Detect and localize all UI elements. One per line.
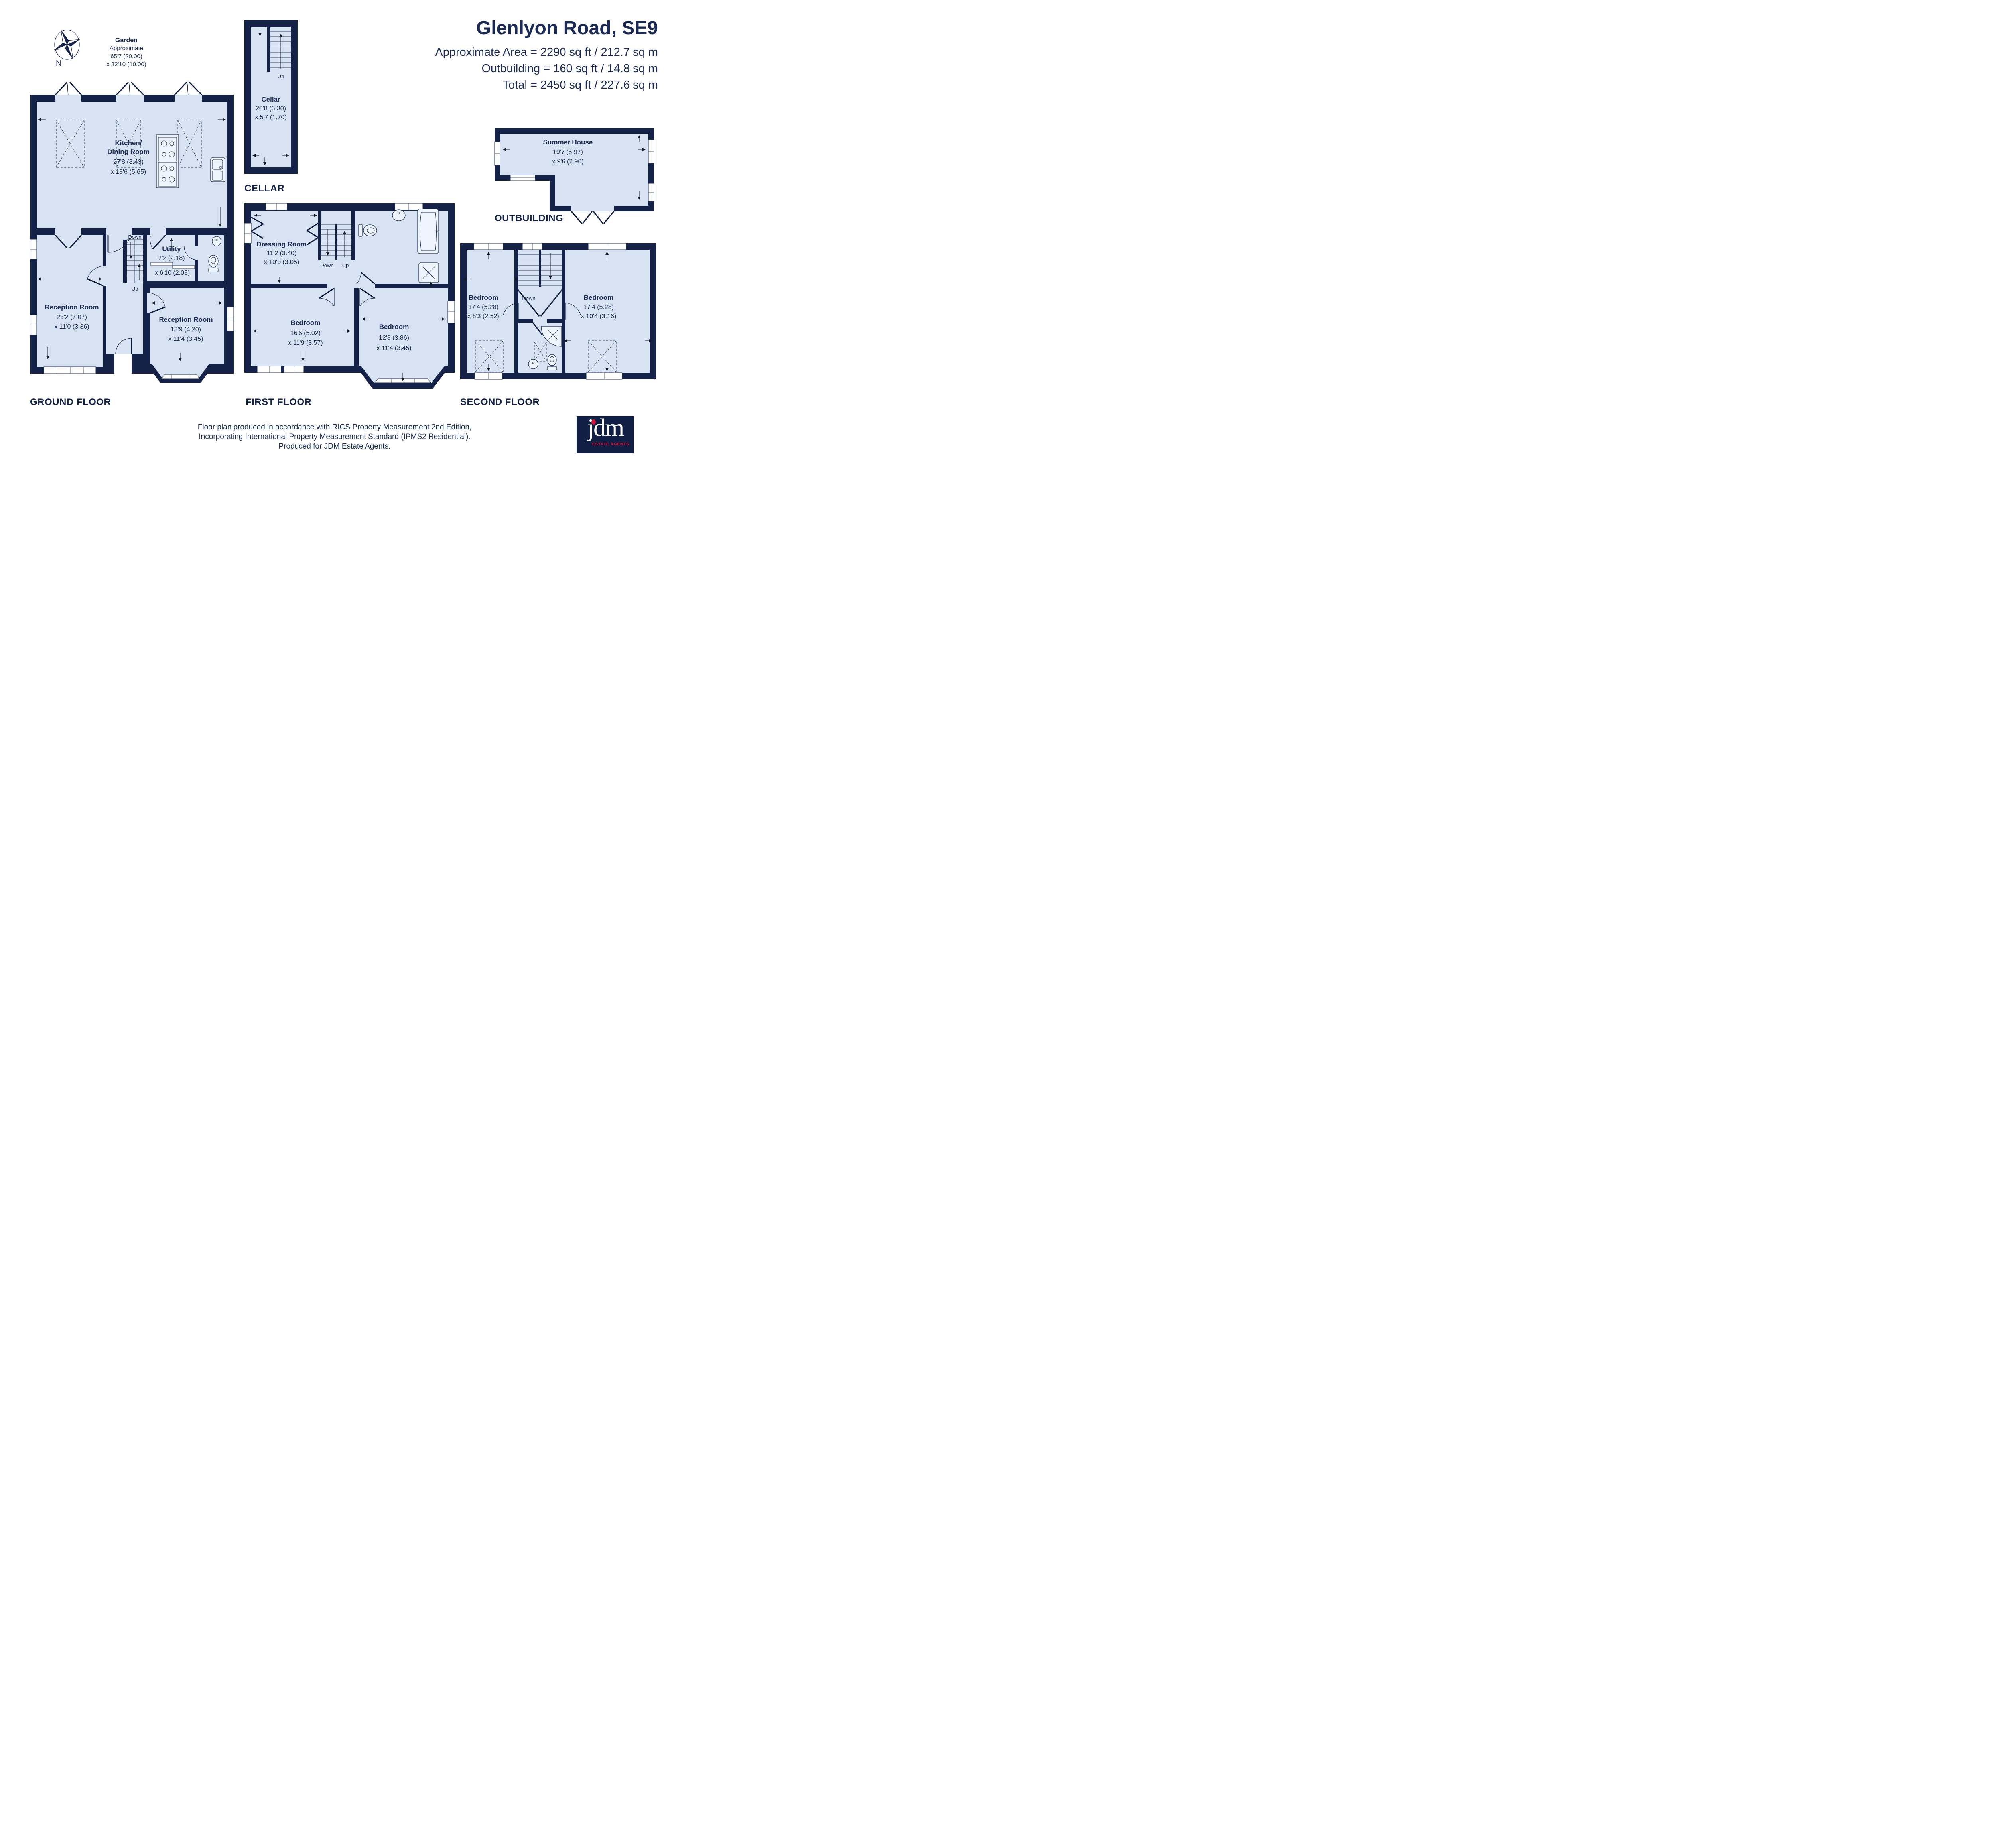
kitchen-sink-icon <box>211 158 225 182</box>
reception2-dim-2: x 11'4 (3.45) <box>168 336 203 342</box>
second-stairs-down-label: Down <box>522 295 535 301</box>
utility-dim-2: x 6'10 (2.08) <box>155 270 190 276</box>
garden-name: Garden <box>115 37 138 44</box>
dressing-dim-2: x 10'0 (3.05) <box>264 259 299 266</box>
jdm-logo-red-dot-icon <box>591 419 596 425</box>
ground-floor-label: GROUND FLOOR <box>30 397 111 407</box>
reception1-dim-2: x 11'0 (3.36) <box>54 323 89 330</box>
bedroom2-dim-1: 12'8 (3.86) <box>379 335 409 341</box>
room-bedroom-1 <box>251 288 354 366</box>
bedroom1-dim-1: 16'6 (5.02) <box>290 330 321 337</box>
summer-house-doorway <box>571 206 614 211</box>
ground-stairs-up-label: Up <box>132 286 138 292</box>
cellar-label: CELLAR <box>244 183 284 194</box>
bedroom3-dim-2: x 8'3 (2.52) <box>467 313 499 320</box>
dressing-name: Dressing Room <box>256 240 307 248</box>
compass-north-label: N <box>56 59 61 68</box>
landing-doorways <box>327 284 375 288</box>
bedroom3-dim-1: 17'4 (5.28) <box>468 304 498 311</box>
approximate-area: Approximate Area = 2290 sq ft / 212.7 sq… <box>435 46 658 59</box>
first-floor-label: FIRST FLOOR <box>246 397 311 407</box>
jdm-logo-text: jdm <box>577 415 634 440</box>
outbuilding-label: OUTBUILDING <box>495 213 563 224</box>
disclaimer-line-1: Floor plan produced in accordance with R… <box>198 423 471 431</box>
summer-house-dim-1: 19'7 (5.97) <box>553 149 583 155</box>
kitchen-dim-1: 27'8 (8.43) <box>113 159 144 165</box>
cellar-dim-1: 20'8 (6.30) <box>256 105 286 112</box>
compass-icon: N <box>48 25 85 68</box>
first-floor-plan: Down Up Dressing Room 11'2 (3.40) x 10'0… <box>244 203 455 389</box>
porch-recess <box>114 354 132 374</box>
floorplan-page: Glenlyon Road, SE9 Approximate Area = 22… <box>0 0 680 462</box>
cellar-name: Cellar <box>261 96 280 103</box>
header: Glenlyon Road, SE9 Approximate Area = 22… <box>435 18 658 91</box>
ground-floor-plan: Down Up Kitchen/ Dining Room 27'8 (8.43)… <box>30 82 234 383</box>
summer-house-dim-2: x 9'6 (2.90) <box>552 158 584 165</box>
kitchen-name-1: Kitchen/ <box>115 139 142 147</box>
garden-approximate: Approximate <box>110 45 143 52</box>
cellar-plan: Up Cellar 20'8 (6.30) x 5'7 (1.70) <box>244 20 298 174</box>
jdm-logo: jdm ESTATE AGENTS <box>577 416 634 453</box>
page-title: Glenlyon Road, SE9 <box>476 18 658 39</box>
disclaimer: Floor plan produced in accordance with R… <box>198 423 471 451</box>
wc-doorway <box>195 246 198 260</box>
utility-dim-1: 7'2 (2.18) <box>158 255 185 262</box>
second-floor-label: SECOND FLOOR <box>460 397 540 407</box>
reception1-doorway <box>103 266 106 286</box>
kitchen-dim-2: x 18'6 (5.65) <box>111 169 146 175</box>
first-shower-icon <box>419 263 439 283</box>
reception1-dim-1: 23'2 (7.07) <box>57 314 87 321</box>
second-floor-plan: Down <box>460 243 656 379</box>
shower-room-wall-left <box>518 319 533 323</box>
kitchen-reception-doorway <box>55 228 81 235</box>
outbuilding-plan: Summer House 19'7 (5.97) x 9'6 (2.90) <box>495 128 654 224</box>
garden-dim2: x 32'10 (10.00) <box>106 61 146 68</box>
dressing-dim-1: 11'2 (3.40) <box>267 250 297 257</box>
second-toilet-icon <box>547 354 557 370</box>
ground-stairs-down-label: Down <box>128 234 141 240</box>
reception2-doorway <box>147 293 150 313</box>
summer-house-french-doors-icon <box>571 211 614 224</box>
wc-toilet-icon <box>209 255 218 272</box>
outbuilding-area: Outbuilding = 160 sq ft / 14.8 sq m <box>481 62 658 75</box>
bedroom1-dim-2: x 11'9 (3.57) <box>288 340 323 346</box>
first-stairs-down-label: Down <box>320 262 333 268</box>
cellar-stairs-up-label: Up <box>278 73 284 79</box>
bedroom3-name: Bedroom <box>469 294 498 301</box>
reception1-name: Reception Room <box>45 303 99 311</box>
disclaimer-line-2: Incorporating International Property Mea… <box>199 433 470 441</box>
room-bedroom-3 <box>467 250 514 373</box>
bedroom2-dim-2: x 11'4 (3.45) <box>376 345 411 352</box>
bedroom1-name: Bedroom <box>291 319 321 327</box>
garden-dim1: 65'7 (20.00) <box>110 53 142 60</box>
total-area: Total = 2450 sq ft / 227.6 sq m <box>503 79 658 91</box>
bedroom4-name: Bedroom <box>584 294 614 301</box>
utility-counter-2 <box>173 266 195 269</box>
bedroom4-dim-1: 17'4 (5.28) <box>583 304 614 311</box>
utility-doorway <box>150 228 166 235</box>
bathroom-sink-icon <box>392 210 405 221</box>
cellar-dim-2: x 5'7 (1.70) <box>255 114 287 121</box>
jdm-logo-tagline: ESTATE AGENTS <box>589 442 632 447</box>
bathroom-toilet-icon <box>359 224 377 236</box>
room-reception-1 <box>37 235 103 367</box>
first-stairs-up-label: Up <box>342 262 349 268</box>
disclaimer-line-3: Produced for JDM Estate Agents. <box>279 442 391 451</box>
room-bedroom-4 <box>565 250 650 373</box>
bedroom4-dim-2: x 10'4 (3.16) <box>581 313 616 320</box>
garden-note: Garden Approximate 65'7 (20.00) x 32'10 … <box>106 37 146 68</box>
garden-french-doors-icon <box>55 82 202 102</box>
shower-room-wall-right <box>547 319 562 323</box>
reception2-name: Reception Room <box>159 316 213 323</box>
second-sink-icon <box>528 359 538 369</box>
utility-name: Utility <box>162 245 181 253</box>
bedroom2-name: Bedroom <box>379 323 409 331</box>
wc-sink-icon <box>212 236 221 246</box>
kitchen-name-2: Dining Room <box>107 148 150 155</box>
reception2-dim-1: 13'9 (4.20) <box>171 326 201 333</box>
floorplan-drawing: Glenlyon Road, SE9 Approximate Area = 22… <box>0 0 680 462</box>
bath-icon <box>418 209 439 254</box>
utility-counter <box>151 262 173 266</box>
hob-island-icon <box>156 135 179 188</box>
summer-house-name: Summer House <box>543 138 593 146</box>
dressing-doorway <box>318 271 321 282</box>
